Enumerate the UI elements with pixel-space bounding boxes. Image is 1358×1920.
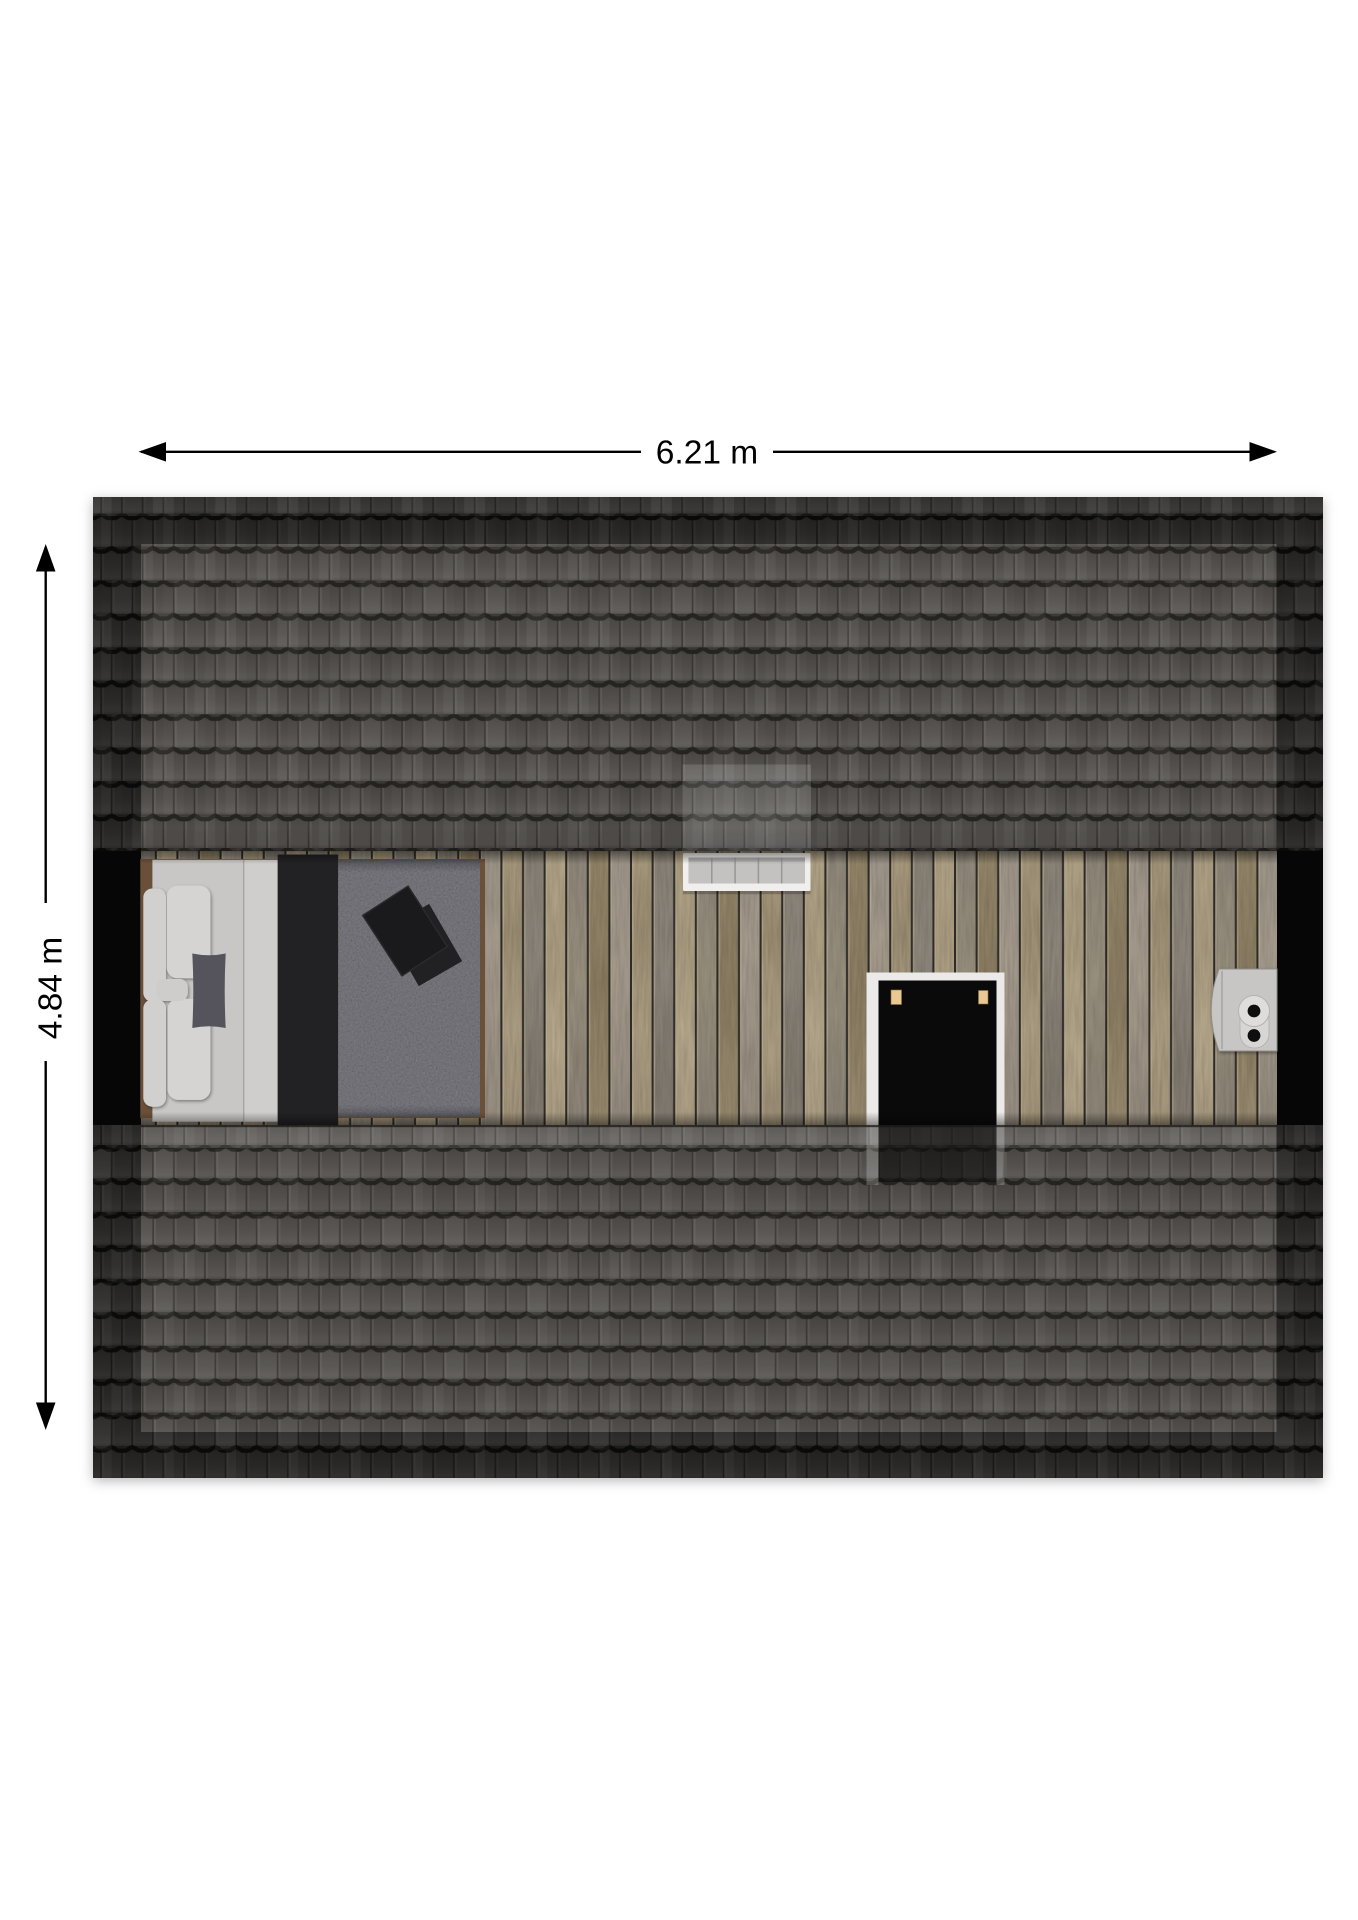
svg-text:6.21 m: 6.21 m bbox=[656, 435, 758, 472]
svg-text:4.84 m: 4.84 m bbox=[33, 937, 70, 1039]
